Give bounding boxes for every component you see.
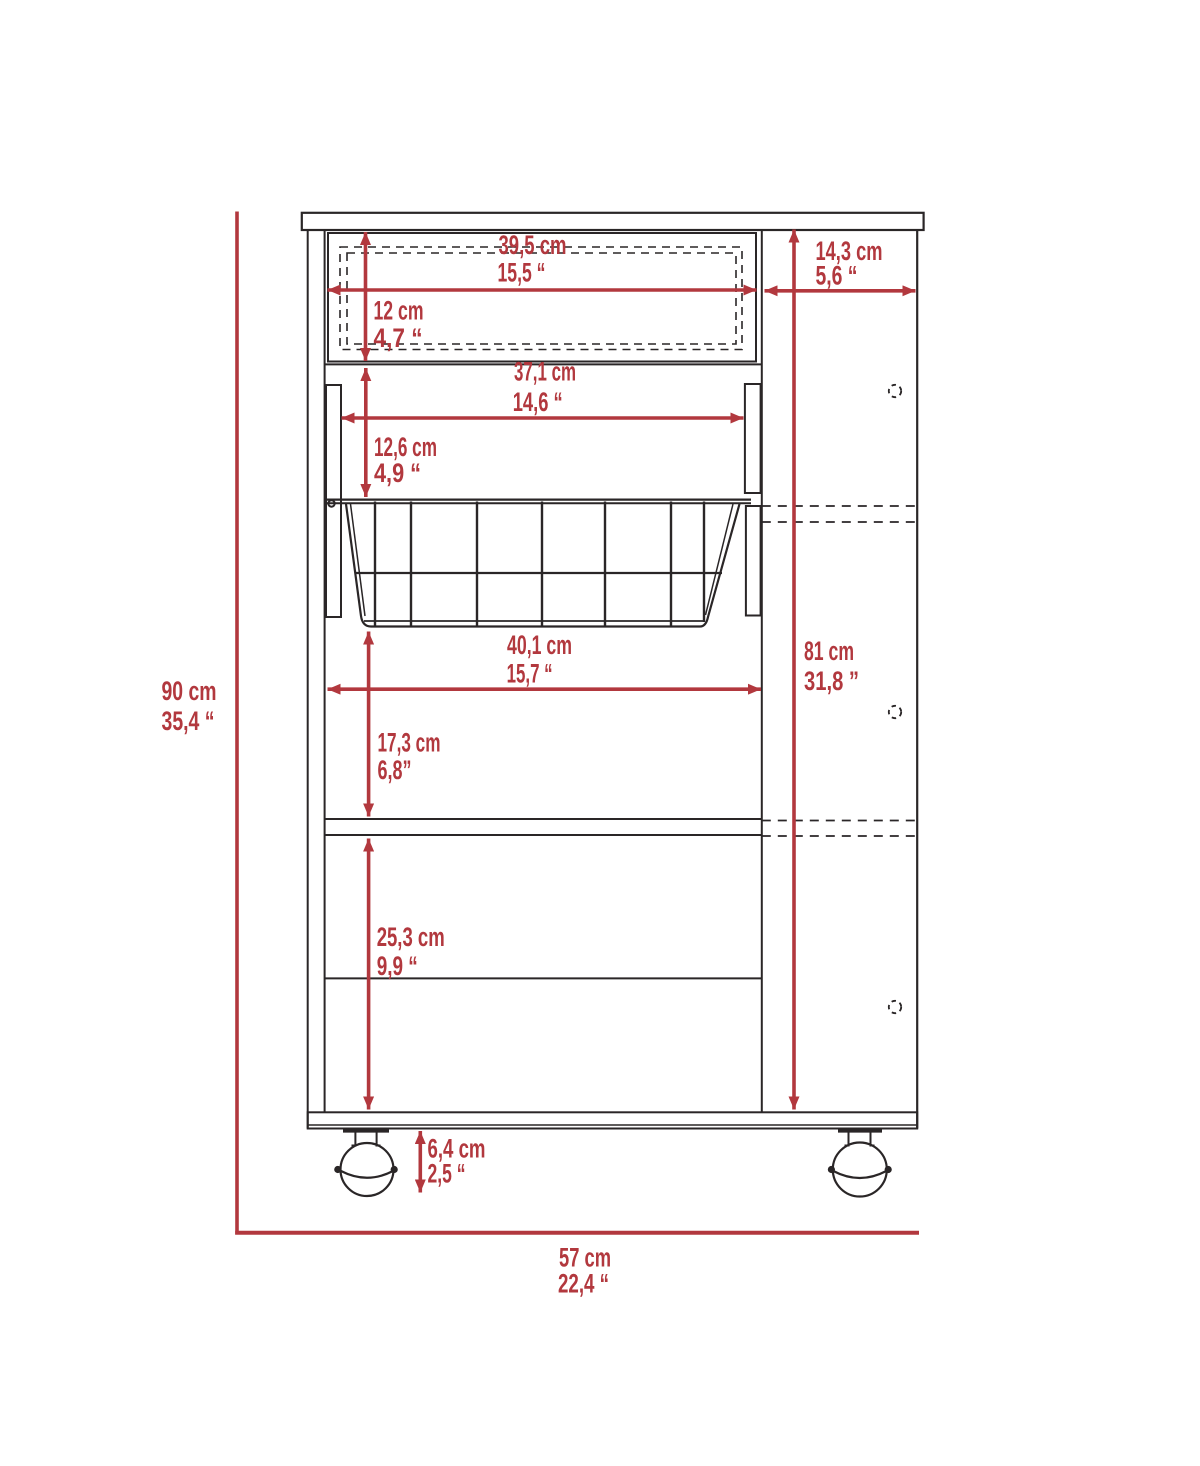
svg-text:40,1 cm: 40,1 cm bbox=[507, 630, 572, 660]
svg-text:6,8”: 6,8” bbox=[378, 755, 412, 785]
svg-text:15,7 “: 15,7 “ bbox=[507, 659, 553, 689]
svg-text:9,9 “: 9,9 “ bbox=[377, 951, 418, 981]
svg-text:17,3 cm: 17,3 cm bbox=[378, 727, 441, 757]
svg-text:81 cm: 81 cm bbox=[804, 636, 854, 666]
svg-text:14,6 “: 14,6 “ bbox=[513, 387, 563, 417]
svg-text:2,5 “: 2,5 “ bbox=[428, 1159, 466, 1189]
svg-text:39,5 cm: 39,5 cm bbox=[499, 230, 567, 260]
svg-text:4,7 “: 4,7 “ bbox=[374, 323, 423, 353]
svg-text:31,8 ”: 31,8 ” bbox=[804, 666, 859, 696]
svg-text:90 cm: 90 cm bbox=[162, 676, 217, 706]
svg-text:5,6 “: 5,6 “ bbox=[816, 261, 858, 291]
svg-text:12 cm: 12 cm bbox=[374, 295, 424, 325]
svg-text:25,3 cm: 25,3 cm bbox=[377, 922, 445, 952]
svg-text:22,4 “: 22,4 “ bbox=[558, 1269, 609, 1299]
svg-text:15,5 “: 15,5 “ bbox=[498, 257, 546, 287]
svg-text:4,9 “: 4,9 “ bbox=[374, 458, 421, 488]
svg-text:37,1 cm: 37,1 cm bbox=[514, 356, 576, 386]
svg-text:35,4 “: 35,4 “ bbox=[162, 706, 215, 736]
